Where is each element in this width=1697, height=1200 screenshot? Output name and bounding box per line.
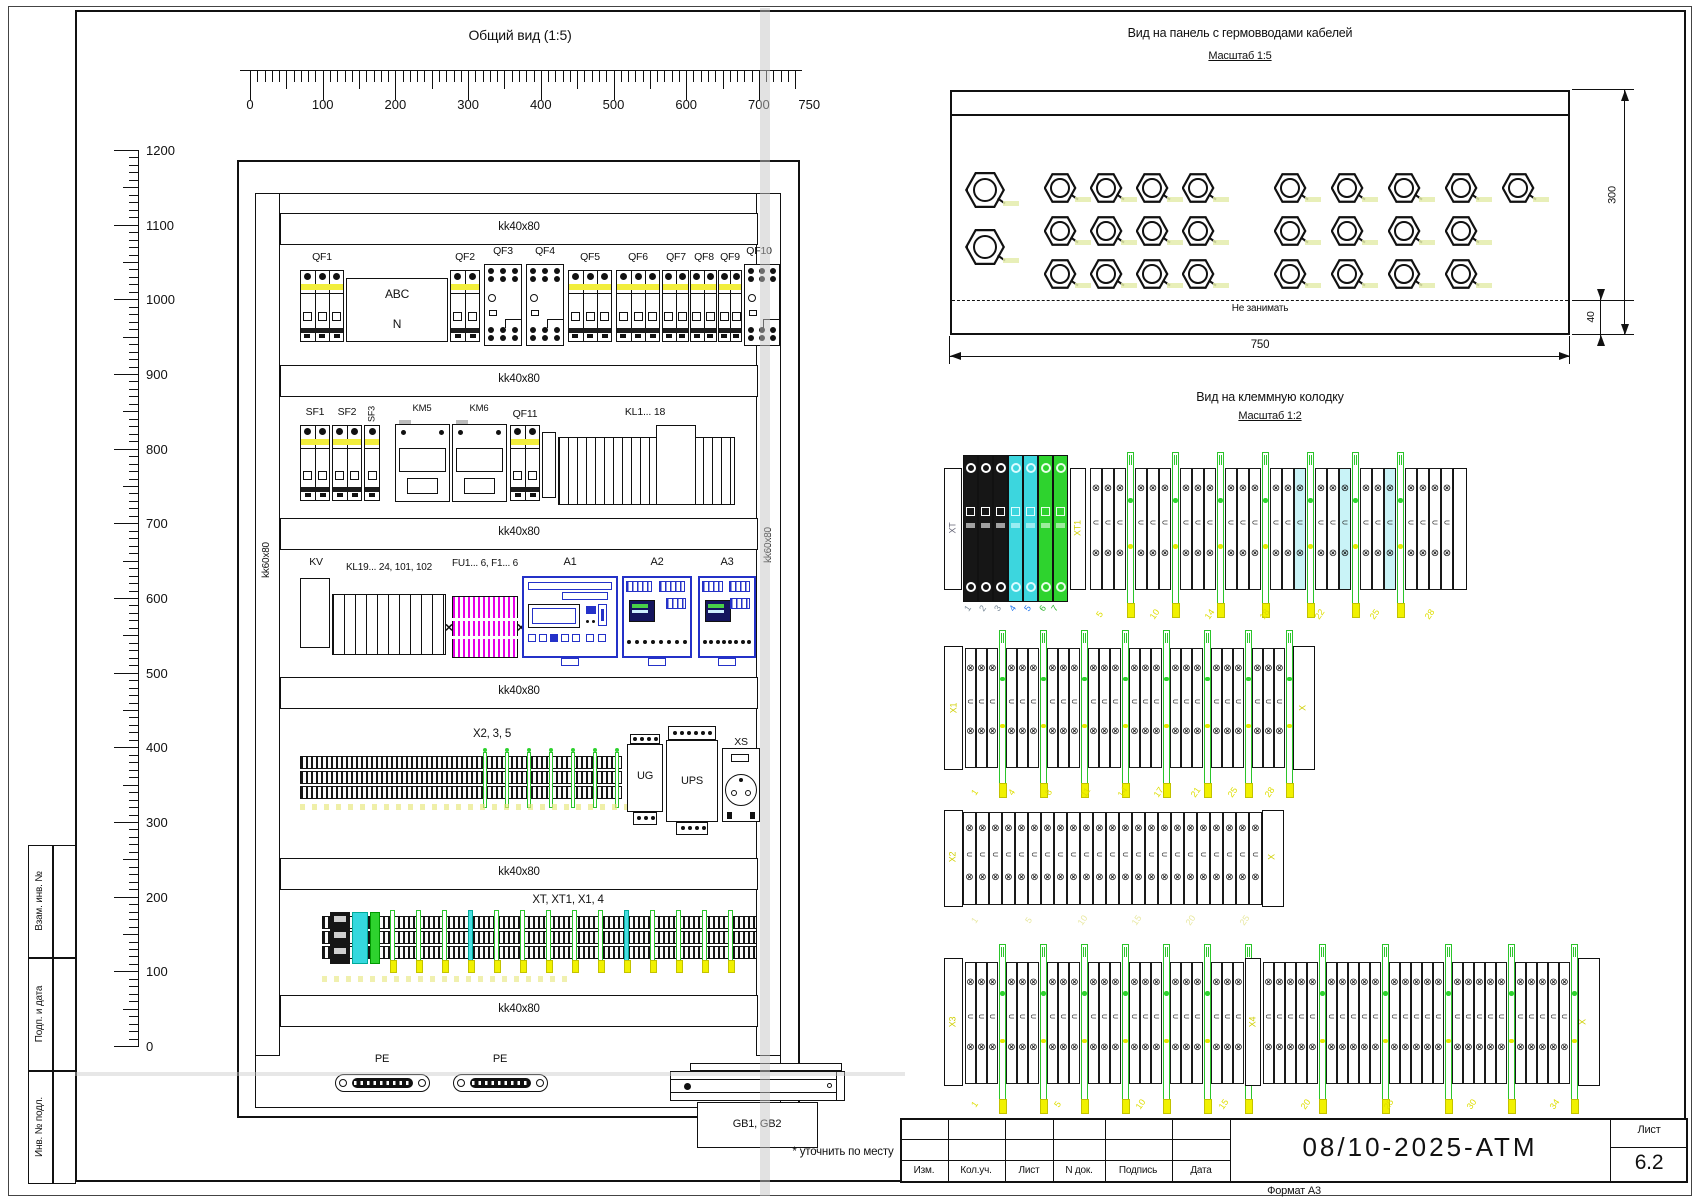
duct-label: kk40x80 xyxy=(498,1004,539,1016)
dim-300: 300 xyxy=(1608,186,1619,204)
stamp-label: Подп. и дата xyxy=(35,986,45,1043)
label-abc: ABC xyxy=(385,288,409,300)
label-kv: KV xyxy=(309,557,323,568)
titleblock-col-podpis: Подпись xyxy=(1119,1166,1157,1176)
label-x4: X4 xyxy=(1249,1017,1258,1028)
stamp-label: Инв. № подл. xyxy=(35,1097,45,1157)
label-fu: FU1... 6, F1... 6 xyxy=(452,559,518,569)
label-x1-end: X xyxy=(1299,705,1308,711)
duct-label: kk40x80 xyxy=(498,374,539,386)
label-km5: KM5 xyxy=(413,404,432,414)
label-x2: X2 xyxy=(949,852,958,863)
footnote: * уточнить по месту xyxy=(792,1147,893,1159)
label-qf1: QF1 xyxy=(312,252,332,263)
label-a1: A1 xyxy=(563,557,576,568)
label-x1: X1 xyxy=(950,703,959,714)
keep-clear-note: Не занимать xyxy=(1232,304,1289,314)
titleblock-line xyxy=(948,1118,949,1183)
vduct-label: kk60x80 xyxy=(262,542,272,578)
label-qf9: QF9 xyxy=(720,252,740,263)
titleblock-line xyxy=(1610,1118,1611,1183)
label-ug: UG xyxy=(637,771,653,782)
label-qf6: QF6 xyxy=(628,252,648,263)
dim-40: 40 xyxy=(1586,311,1597,322)
label-ups: UPS xyxy=(681,776,703,787)
titleblock-col-ndok: N док. xyxy=(1065,1166,1092,1176)
titleblock-col-data: Дата xyxy=(1190,1166,1211,1176)
label-qf4: QF4 xyxy=(535,246,555,257)
label-qf3: QF3 xyxy=(493,246,513,257)
document-number: 08/10-2025-АТМ xyxy=(1302,1134,1537,1160)
label-kl19-24: KL19... 24, 101, 102 xyxy=(346,563,432,573)
titleblock-line xyxy=(1053,1118,1054,1183)
stamp-divider xyxy=(52,958,54,1071)
label-xs: XS xyxy=(734,737,748,748)
label-sf3: SF3 xyxy=(368,406,377,422)
label-xt1: XT1 xyxy=(1074,520,1083,536)
stamp-label: Взам. инв. № xyxy=(35,871,45,931)
stamp-divider xyxy=(52,845,54,958)
label-gb1-gb2: GB1, GB2 xyxy=(733,1119,782,1130)
label-qf7: QF7 xyxy=(666,252,686,263)
drawing-frame xyxy=(75,10,1686,1182)
gland-view-scale: Масштаб 1:5 xyxy=(1208,51,1271,62)
label-qf2: QF2 xyxy=(455,252,475,263)
terminal-view-title: Вид на клеммную колодку xyxy=(1196,391,1343,404)
titleblock-line xyxy=(1230,1118,1231,1183)
titleblock-line xyxy=(900,1160,1230,1161)
sheet-word-label: Лист xyxy=(1637,1125,1660,1136)
dim-750: 750 xyxy=(1251,340,1270,352)
stamp-divider xyxy=(52,1071,54,1184)
duct-label: kk40x80 xyxy=(498,867,539,879)
label-x2-end: X xyxy=(1268,854,1277,860)
terminal-view-scale: Масштаб 1:2 xyxy=(1238,411,1301,422)
label-a2: A2 xyxy=(650,557,663,568)
label-xt-row: XT, XT1, X1, 4 xyxy=(532,895,603,907)
label-km6: KM6 xyxy=(470,404,489,414)
titleblock-line xyxy=(1105,1118,1106,1183)
titleblock-col-list: Лист xyxy=(1019,1166,1040,1176)
label-x235: X2, 3, 5 xyxy=(473,729,511,741)
label-xt: XT xyxy=(949,522,958,533)
duct-label: kk40x80 xyxy=(498,686,539,698)
titleblock-line xyxy=(1172,1118,1173,1183)
titleblock-line xyxy=(1610,1147,1688,1148)
gland-view-title: Вид на панель с гермовводами кабелей xyxy=(1128,27,1353,40)
label-qf8: QF8 xyxy=(694,252,714,263)
label-kl1-18: KL1... 18 xyxy=(625,407,665,418)
label-pe: PE xyxy=(493,1054,507,1065)
fold-line-vertical xyxy=(760,8,770,1196)
format-note: Формат А3 xyxy=(1267,1186,1321,1197)
fold-line-horizontal xyxy=(75,1072,905,1076)
titleblock-line xyxy=(900,1139,1230,1140)
label-a3: A3 xyxy=(720,557,733,568)
general-view-title: Общий вид (1:5) xyxy=(468,28,571,42)
label-sf2: SF2 xyxy=(338,407,357,418)
label-x4-end: X xyxy=(1579,1019,1588,1025)
label-sf1: SF1 xyxy=(306,407,325,418)
titleblock-line xyxy=(1005,1118,1006,1183)
titleblock-col-izm: Изм. xyxy=(914,1166,935,1176)
label-qf11: QF11 xyxy=(513,409,538,420)
duct-label: kk40x80 xyxy=(498,222,539,234)
label-x3: X3 xyxy=(949,1017,958,1028)
titleblock-col-koluch: Кол.уч. xyxy=(960,1166,991,1176)
drawing-sheet: 0100200300400500600700750120011001000900… xyxy=(0,0,1697,1200)
label-pe: PE xyxy=(375,1054,389,1065)
label-n: N xyxy=(393,318,401,330)
duct-label: kk40x80 xyxy=(498,527,539,539)
sheet-number: 6.2 xyxy=(1635,1152,1664,1173)
label-qf5: QF5 xyxy=(580,252,600,263)
